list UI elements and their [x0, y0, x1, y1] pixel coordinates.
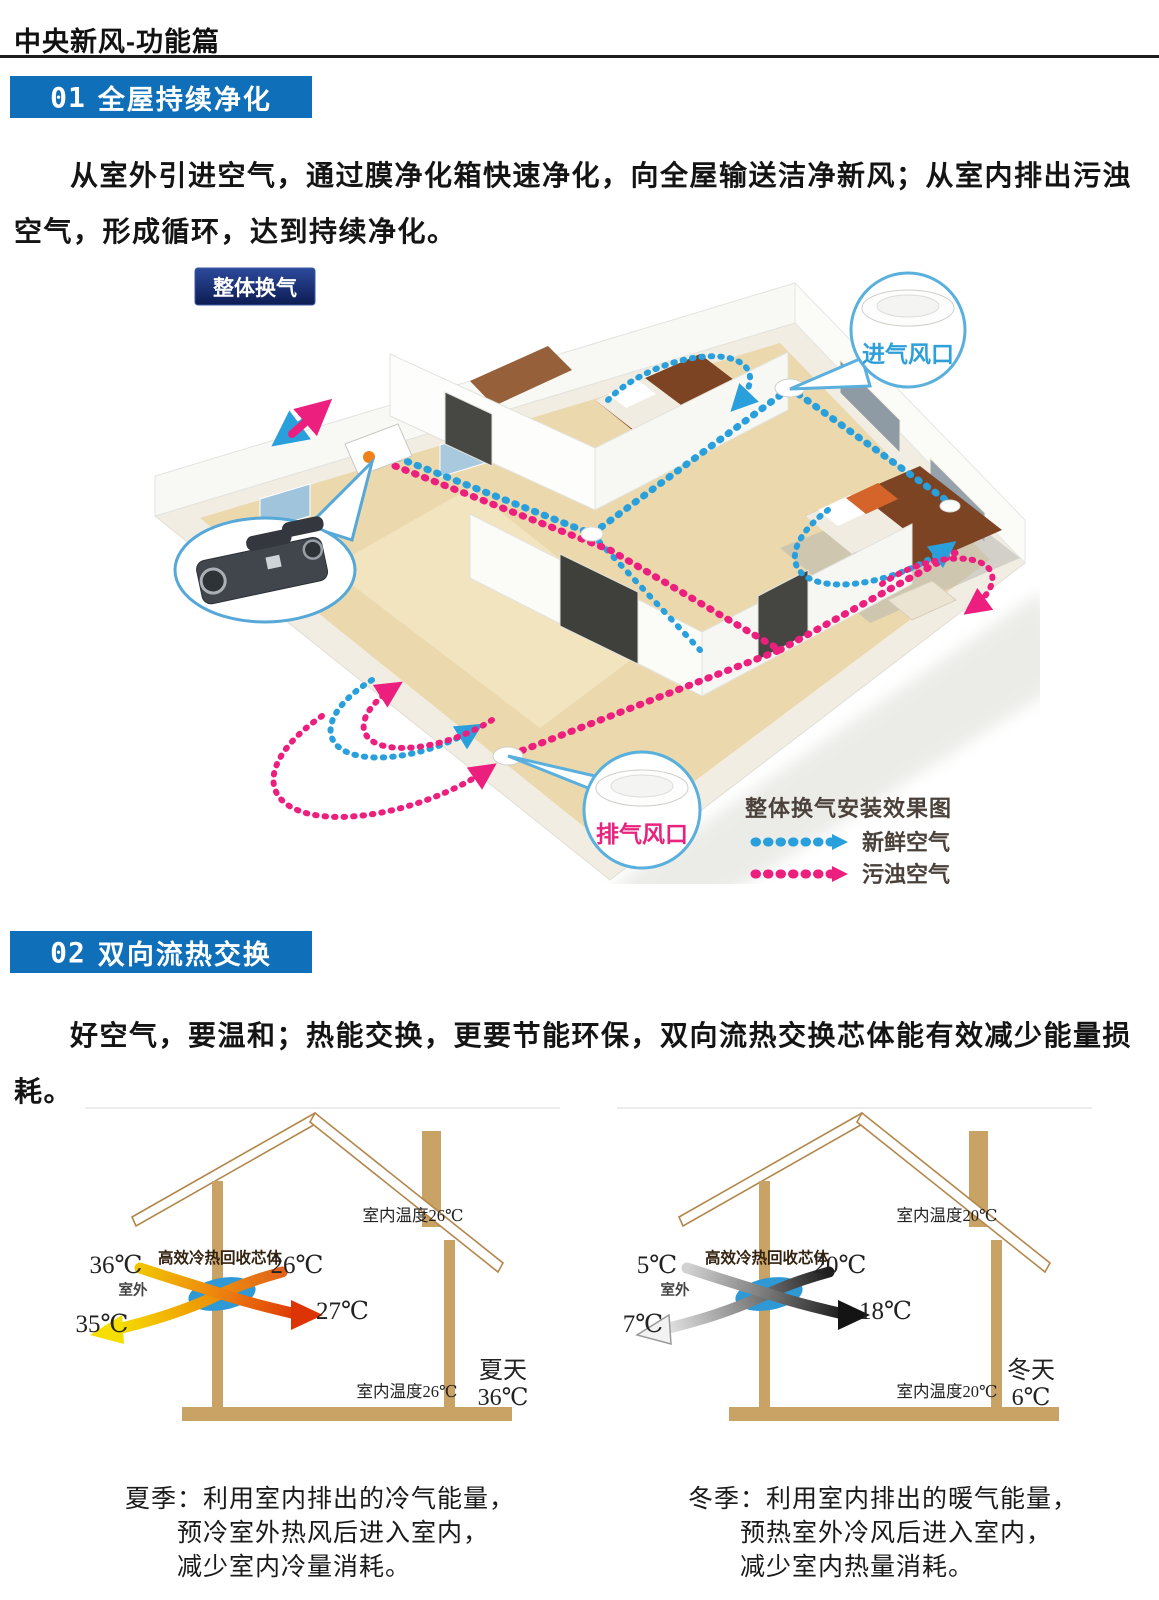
season-label: 冬天: [1007, 1357, 1055, 1384]
outdoor-label: 室外: [119, 1281, 148, 1299]
intake-vent-label: 进气风口: [862, 341, 954, 367]
summer-caption-line3: 减少室内冷量消耗。: [177, 1550, 555, 1584]
brochure-page: 中央新风-功能篇 01 全屋持续净化 从室外引进空气，通过膜净化箱快速净化，向全…: [0, 0, 1159, 1600]
legend-fresh-air: 新鲜空气: [862, 830, 950, 855]
winter-caption-line2: 预热室外冷风后进入室内，: [740, 1516, 1118, 1550]
floor-indoor-temp: 室内温度26℃: [357, 1382, 458, 1401]
roof-indoor-temp: 室内温度26℃: [363, 1206, 464, 1225]
exhaust-vent-label: 排气风口: [596, 821, 688, 847]
core-label: 高效冷热回收芯体: [705, 1248, 830, 1267]
stale-air-legend-arrow: [832, 866, 848, 882]
indoor-return-temp: 26℃: [271, 1252, 324, 1279]
page-title: 中央新风-功能篇: [14, 20, 220, 59]
exhaust-out-temp: 7℃: [623, 1311, 663, 1338]
season-temp: 6℃: [1012, 1385, 1051, 1411]
unit-indicator: [362, 450, 376, 464]
summer-caption-line1: 夏季：利用室内排出的冷气能量，: [125, 1482, 555, 1516]
diagram-badge: 整体换气: [195, 268, 315, 305]
winter-heat-exchange-diagram: 5℃ 高效冷热回收芯体 20℃ 室外 7℃ 18℃ 室内温度20℃ 室内温度20…: [617, 1085, 1107, 1433]
outdoor-label: 室外: [661, 1281, 690, 1299]
section1-banner: 01 全屋持续净化: [10, 76, 312, 118]
roof-indoor-temp: 室内温度20℃: [897, 1206, 998, 1225]
legend-stale-air: 污浊空气: [862, 862, 950, 884]
supply-in-temp: 27℃: [316, 1298, 369, 1325]
outdoor-in-temp: 5℃: [637, 1252, 677, 1279]
supply-in-temp: 18℃: [859, 1298, 912, 1325]
core-label: 高效冷热回收芯体: [158, 1248, 283, 1267]
summer-caption: 夏季：利用室内排出的冷气能量， 预冷室外热风后进入室内， 减少室内冷量消耗。: [125, 1482, 555, 1584]
title-divider: [0, 55, 1159, 58]
badge-label: 整体换气: [213, 276, 297, 300]
section2-number: 02: [50, 936, 86, 969]
floor-indoor-temp: 室内温度20℃: [897, 1382, 998, 1401]
section2-title: 双向流热交换: [98, 933, 272, 972]
exhaust-out-temp: 35℃: [76, 1311, 129, 1338]
section1-number: 01: [50, 81, 86, 114]
winter-caption-line1: 冬季：利用室内排出的暖气能量，: [688, 1482, 1118, 1516]
fresh-air-legend-arrow: [832, 834, 848, 850]
indoor-return-temp: 20℃: [814, 1252, 867, 1279]
season-temp: 36℃: [478, 1385, 529, 1411]
section1-title: 全屋持续净化: [98, 78, 272, 117]
legend-title: 整体换气安装效果图: [745, 796, 952, 821]
whole-house-ventilation-diagram: 整体换气 进气风口 排气风口 整体换气安装效果图 新鲜空气 污浊空气: [140, 248, 1040, 884]
winter-caption-line3: 减少室内热量消耗。: [740, 1550, 1118, 1584]
summer-caption-line2: 预冷室外热风后进入室内，: [177, 1516, 555, 1550]
section2-banner: 02 双向流热交换: [10, 931, 312, 973]
season-label: 夏天: [479, 1358, 527, 1384]
outdoor-in-temp: 36℃: [90, 1252, 143, 1279]
winter-caption: 冬季：利用室内排出的暖气能量， 预热室外冷风后进入室内， 减少室内热量消耗。: [688, 1482, 1118, 1584]
diagram-legend: 整体换气安装效果图 新鲜空气 污浊空气: [745, 796, 952, 884]
summer-heat-exchange-diagram: 36℃ 高效冷热回收芯体 26℃ 室外 35℃ 27℃ 室内温度26℃ 室内温度…: [70, 1085, 560, 1433]
house-frame: [679, 1113, 1059, 1421]
section1-body: 从室外引进空气，通过膜净化箱快速净化，向全屋输送洁净新风；从室内排出污浊空气，形…: [14, 148, 1146, 260]
